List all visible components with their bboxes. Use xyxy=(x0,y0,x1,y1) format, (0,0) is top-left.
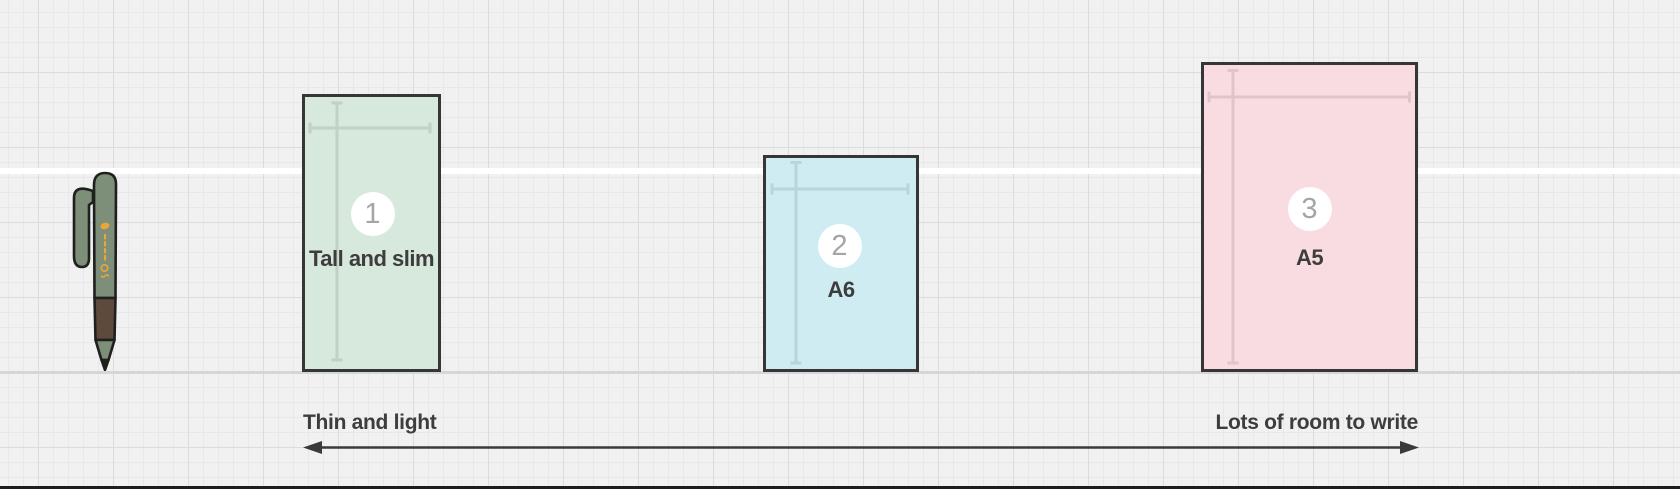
axis-label-lots-of-room[interactable]: Lots of room to write xyxy=(1215,411,1418,435)
number-badge: 1 xyxy=(351,192,395,236)
arrowhead-left-icon xyxy=(303,441,322,454)
arrowhead-right-icon xyxy=(1400,441,1419,454)
bottom-toolbar-edge xyxy=(0,486,1680,489)
axis-label-thin-and-light[interactable]: Thin and light xyxy=(303,411,436,435)
notebook-label: A5 xyxy=(1296,246,1323,270)
notebook-a5[interactable]: 3 A5 xyxy=(1201,62,1418,372)
number-badge: 2 xyxy=(818,224,862,268)
whiteboard-canvas[interactable]: 1 Tall and slim 2 A6 3 A5 Thin and light… xyxy=(0,0,1680,489)
badge-number: 1 xyxy=(364,192,380,236)
pen-illustration[interactable] xyxy=(70,169,120,371)
notebook-a6[interactable]: 2 A6 xyxy=(763,155,919,372)
pen-tip xyxy=(102,360,109,370)
notebook-tall-slim[interactable]: 1 Tall and slim xyxy=(302,94,441,372)
number-badge: 3 xyxy=(1288,187,1332,231)
double-arrow[interactable] xyxy=(301,436,1421,460)
badge-number: 2 xyxy=(831,224,847,268)
pen-grip xyxy=(95,298,116,340)
notebook-label: A6 xyxy=(827,278,854,302)
notebook-label: Tall and slim xyxy=(309,247,434,271)
pen-cone xyxy=(96,340,115,360)
pen-clip xyxy=(74,189,93,267)
badge-number: 3 xyxy=(1301,187,1317,231)
